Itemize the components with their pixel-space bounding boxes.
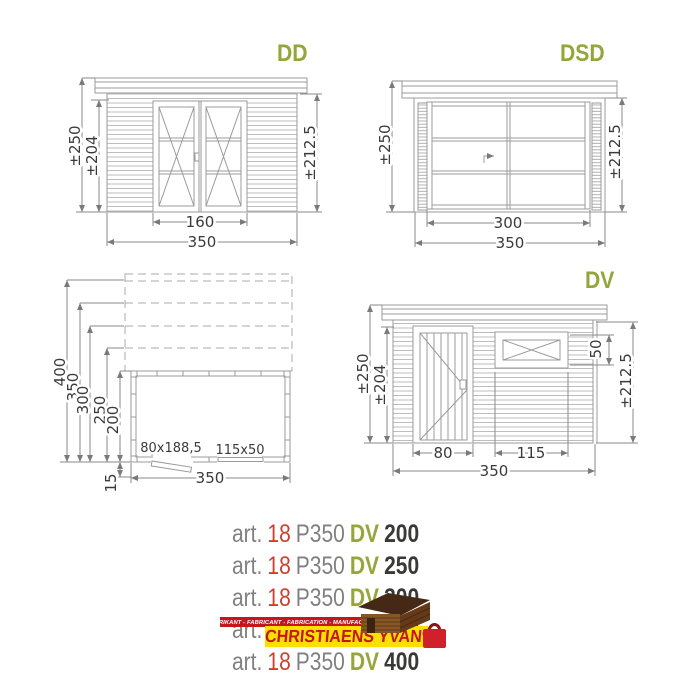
dim-label: 300 [494, 214, 523, 232]
dim-label: 115 [517, 444, 546, 462]
article-prefix: art. [232, 520, 262, 548]
dim-label: ±250 [354, 353, 372, 394]
catalog-sheet: ±250 ±204 ±212.5 160 350 [0, 0, 700, 700]
article-row: art.18P350DV400 [232, 649, 419, 675]
dim-label: 160 [186, 213, 215, 231]
dim-label: ±204 [371, 364, 389, 405]
dim-label: 15 [102, 473, 120, 492]
article-row: art.18P350DV250 [232, 553, 419, 579]
article-model: P350 [296, 520, 345, 548]
dim-label: 350 [480, 462, 509, 480]
door-handle [460, 380, 466, 389]
dim-label: ±250 [376, 124, 394, 165]
article-size: 250 [384, 552, 419, 580]
article-number: 18 [267, 648, 290, 676]
article-number: 18 [267, 584, 290, 612]
article-prefix: art. [232, 552, 262, 580]
article-prefix: art. [232, 648, 262, 676]
article-series: DV [350, 552, 379, 580]
dim-label: ±250 [66, 125, 84, 166]
door-handle [195, 153, 199, 161]
article-size: 400 [384, 648, 419, 676]
dim-label: 80 [433, 444, 452, 462]
drawing-dv-door-window: ±250 ±204 50 ±212.5 80 115 350 [354, 305, 638, 480]
article-model: P350 [296, 584, 345, 612]
article-prefix: art. [232, 584, 262, 612]
article-series: DV [350, 648, 379, 676]
title-dsd: DSD [560, 40, 605, 68]
article-number: 18 [267, 552, 290, 580]
article-number: 18 [267, 520, 290, 548]
dim-label: 200 [104, 406, 122, 435]
dim-label: 350 [188, 233, 217, 251]
title-dv: DV [585, 267, 614, 295]
dim-label: 50 [587, 339, 605, 358]
article-size: 200 [384, 520, 419, 548]
dim-label-window-size: 115x50 [215, 443, 264, 458]
dim-label: ±212.5 [606, 124, 624, 180]
drawing-dsd-sliding-door: ±250 ±212.5 300 350 [376, 81, 627, 252]
drawing-dd-front-double-door: ±250 ±204 ±212.5 160 350 [66, 78, 322, 251]
drawing-floor-plan: 400 350 300 250 200 15 350 80x188,5 115x… [51, 274, 292, 493]
logo-banner-text: FABRIKANT - FABRICANT - FABRICATION - MA… [220, 619, 370, 625]
shopping-bag-icon [420, 618, 449, 649]
article-row: art.18P350DV200 [232, 521, 419, 547]
title-dd: DD [277, 40, 308, 68]
article-model: P350 [296, 552, 345, 580]
dim-label: 350 [496, 234, 525, 252]
dim-label-door-size: 80x188,5 [140, 441, 201, 456]
article-model: P350 [296, 648, 345, 676]
dim-label: ±212.5 [301, 125, 319, 181]
dim-label: 350 [196, 469, 225, 487]
dim-label: ±204 [83, 135, 101, 176]
dim-label: ±212.5 [617, 353, 635, 409]
article-series: DV [350, 520, 379, 548]
dim-label: 300 [74, 386, 92, 415]
